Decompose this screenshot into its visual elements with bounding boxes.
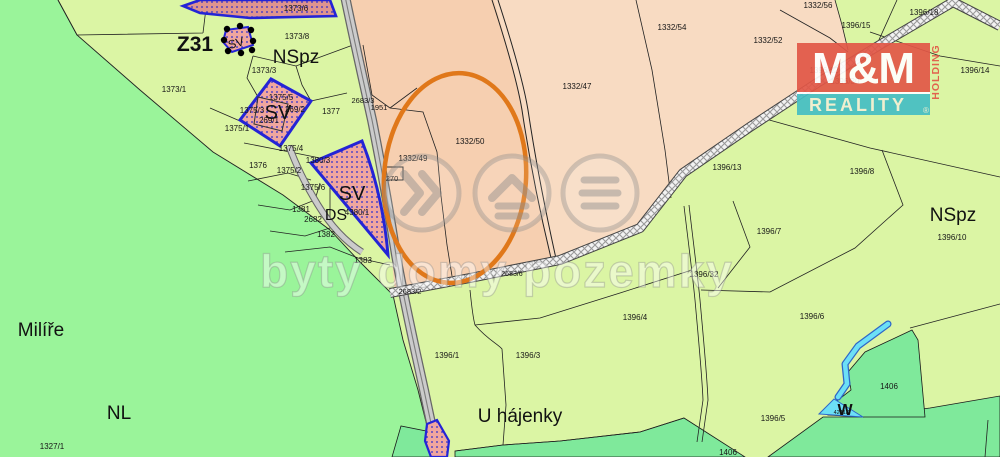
parcel-number-label: 1396/3 bbox=[516, 351, 541, 360]
parcel-number-label: 1380/3 bbox=[306, 156, 331, 165]
parcel-number-label: 1332/54 bbox=[658, 23, 687, 32]
mm-reality-logo: M&M REALITY ® HOLDING bbox=[797, 43, 942, 115]
logo-mm-text: M&M bbox=[812, 44, 914, 93]
parcel-number-label: 1375/3 bbox=[240, 106, 265, 115]
parcel-number-label: 1375/1 bbox=[225, 124, 250, 133]
zone-label: Milíře bbox=[18, 320, 64, 341]
parcel-number-label: 1396/13 bbox=[713, 163, 742, 172]
parcel-number-label: 1327/1 bbox=[40, 442, 65, 451]
logo-holding-text: HOLDING bbox=[930, 44, 942, 99]
zone-label: NL bbox=[107, 403, 131, 424]
cadastral-map: 1373/61373/81373/31373/11375/11375/51375… bbox=[0, 0, 1000, 457]
parcel-number-label: 1332/52 bbox=[754, 36, 783, 45]
parcel-number-label: 1396/15 bbox=[842, 21, 871, 30]
parcel-number-label: 1396/5 bbox=[761, 414, 786, 423]
parcel-number-label: 1382 bbox=[317, 230, 335, 239]
parcel-number-label: 1376 bbox=[249, 161, 267, 170]
parcel-number-label: 1332/56 bbox=[804, 1, 833, 10]
parcel-number-label: 1332/50 bbox=[456, 137, 485, 146]
watermark-text: byty domy pozemky bbox=[260, 245, 734, 297]
parcel-number-label: 1373/6 bbox=[284, 4, 309, 13]
zone-label: W bbox=[837, 402, 853, 419]
parcel-number-label: 1377 bbox=[322, 107, 340, 116]
parcel-number-label: 1373/8 bbox=[285, 32, 310, 41]
parcel-number-label: 1396/4 bbox=[623, 313, 648, 322]
parcel-number-label: 1396/6 bbox=[800, 312, 825, 321]
parcel-number-label: 1375/6 bbox=[301, 183, 326, 192]
logo-divider bbox=[797, 92, 930, 94]
parcel-number-label: 1396/8 bbox=[850, 167, 875, 176]
zone-label: DS bbox=[325, 207, 347, 224]
zone-label: Z31 bbox=[177, 33, 214, 56]
logo-registered-mark: ® bbox=[923, 106, 929, 115]
parcel-number-label: 1396/1 bbox=[435, 351, 460, 360]
parcel-number-label: 1381 bbox=[292, 205, 310, 214]
logo-reality-text: REALITY bbox=[809, 95, 907, 115]
parcel-number-label: 1375/4 bbox=[279, 144, 304, 153]
parcel-number-label: 1375/2 bbox=[277, 166, 302, 175]
zone-label: U hájenky bbox=[478, 406, 563, 427]
parcel-number-label: 1332/47 bbox=[563, 82, 592, 91]
zone-label: SV bbox=[265, 102, 292, 124]
parcel-number-label: 1375/5 bbox=[269, 93, 294, 102]
parcel-number-label: 1396/18 bbox=[910, 8, 939, 17]
parcel-number-label: 2682 bbox=[304, 215, 322, 224]
parcel-number-label: 1406 bbox=[880, 382, 898, 391]
parcel-number-label: 1396/14 bbox=[961, 66, 990, 75]
parcel-number-label: 1951 bbox=[371, 103, 388, 112]
parcel-number-label: 1373/1 bbox=[162, 85, 187, 94]
parcel-number-label: 1396/10 bbox=[938, 233, 967, 242]
zone-label: NSpz bbox=[930, 205, 976, 226]
zone-label: SV bbox=[339, 183, 366, 205]
zone-label: NSpz bbox=[273, 47, 319, 68]
parcel-number-label: 1396/7 bbox=[757, 227, 782, 236]
parcel-number-label: 4380/1 bbox=[345, 208, 370, 217]
parcel-number-label: 1406 bbox=[719, 448, 737, 457]
